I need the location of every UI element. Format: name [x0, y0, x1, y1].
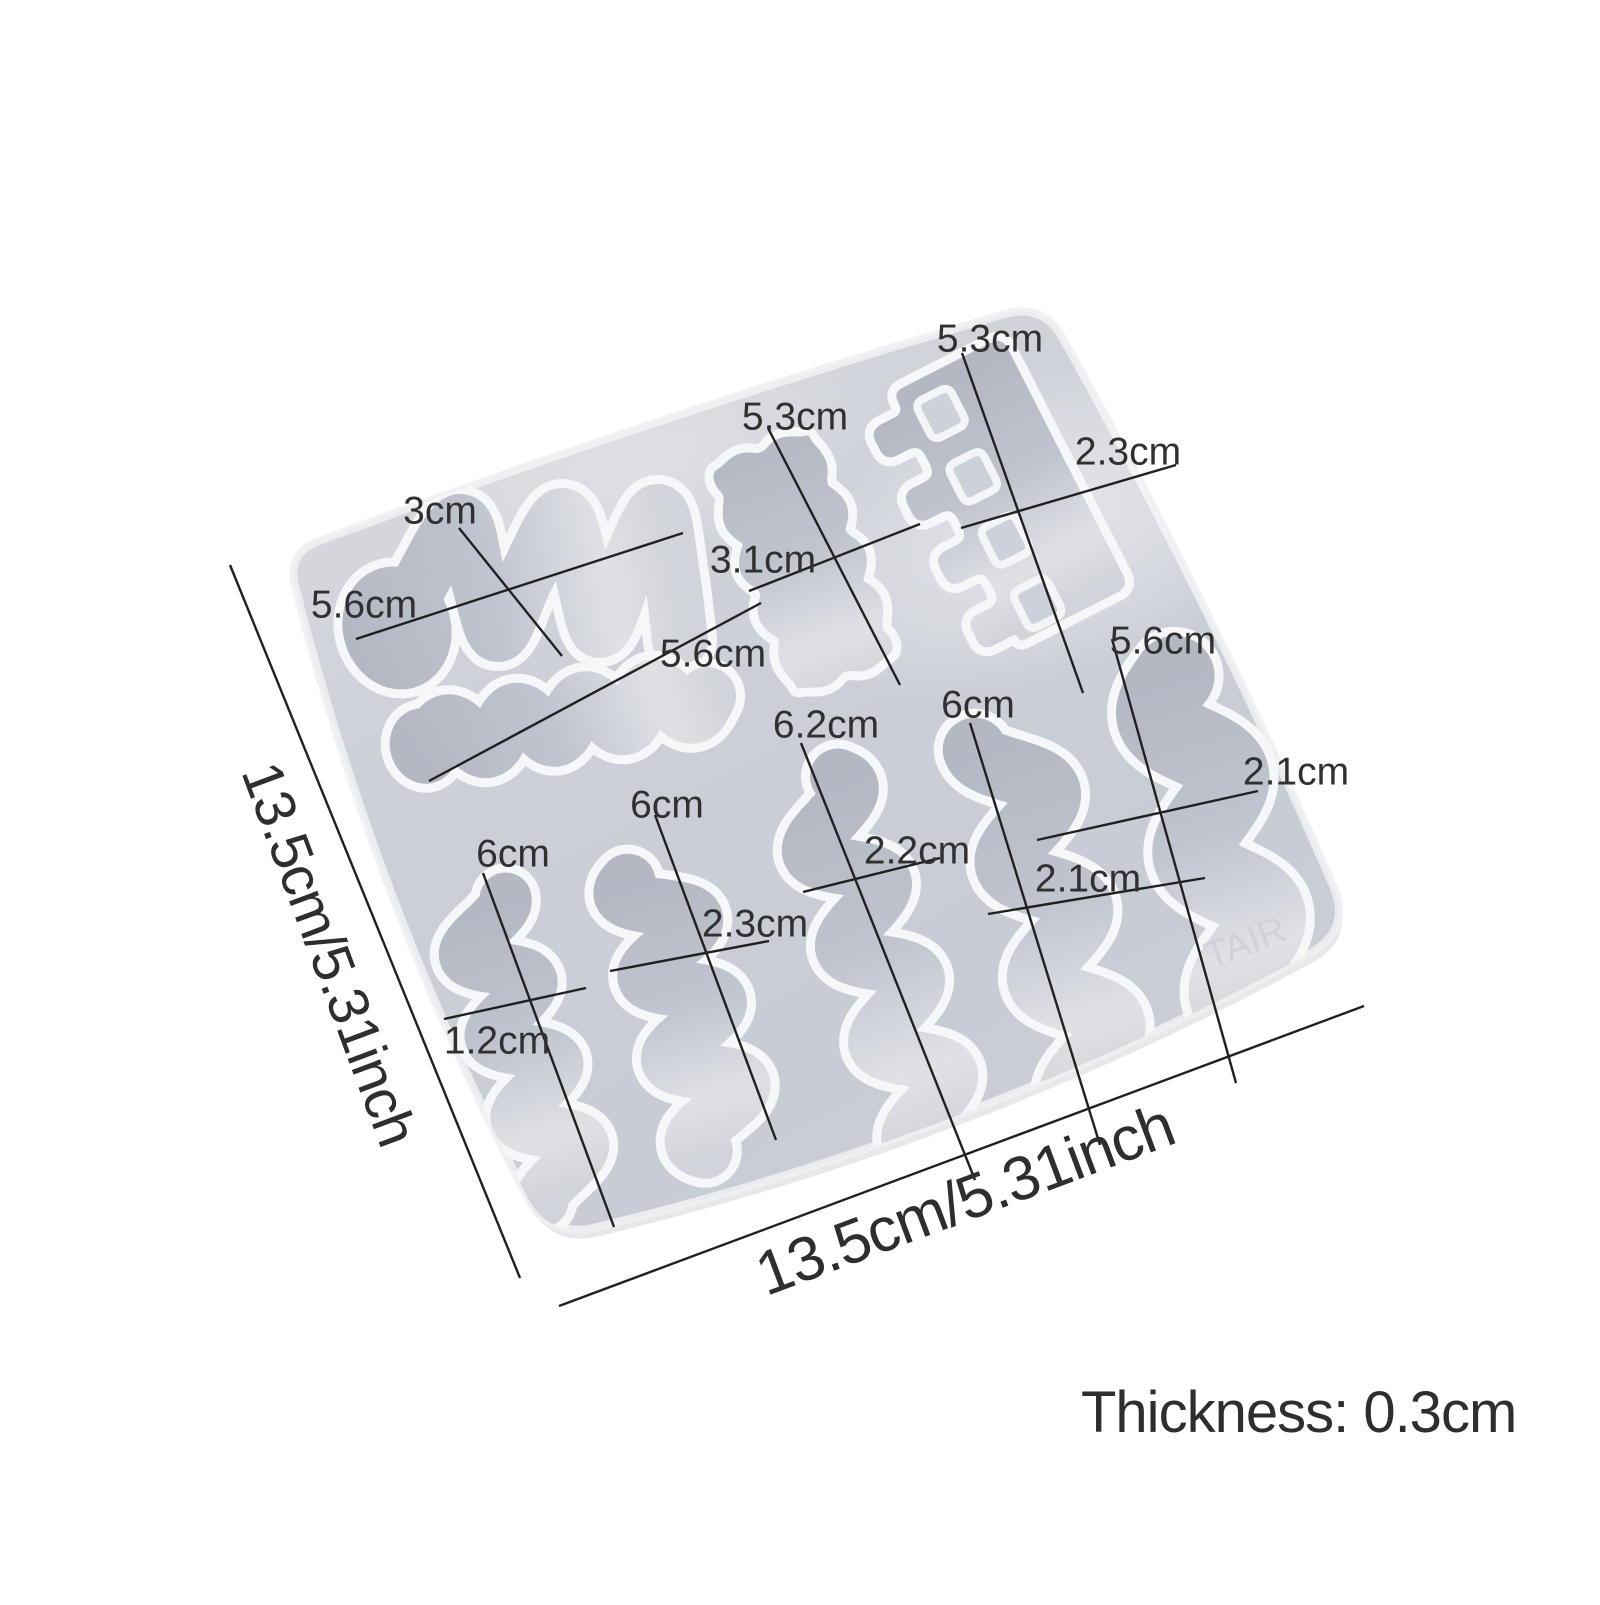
svg-text:Thickness: 0.3cm: Thickness: 0.3cm	[1081, 1380, 1516, 1445]
svg-text:6.2cm: 6.2cm	[773, 704, 879, 747]
svg-text:5.3cm: 5.3cm	[937, 318, 1043, 361]
svg-text:5.3cm: 5.3cm	[742, 396, 848, 439]
svg-text:6cm: 6cm	[476, 833, 550, 876]
svg-text:2.3cm: 2.3cm	[1075, 431, 1181, 474]
svg-text:5.6cm: 5.6cm	[1110, 620, 1216, 663]
svg-text:2.3cm: 2.3cm	[702, 903, 808, 946]
svg-text:1.2cm: 1.2cm	[444, 1020, 550, 1063]
svg-text:6cm: 6cm	[941, 684, 1015, 727]
svg-text:5.6cm: 5.6cm	[660, 633, 766, 676]
svg-text:5.6cm: 5.6cm	[311, 584, 417, 627]
svg-text:6cm: 6cm	[630, 784, 704, 827]
svg-text:2.2cm: 2.2cm	[864, 830, 970, 873]
svg-text:2.1cm: 2.1cm	[1243, 751, 1349, 794]
svg-text:3.1cm: 3.1cm	[710, 539, 816, 582]
svg-text:2.1cm: 2.1cm	[1035, 858, 1141, 901]
svg-text:3cm: 3cm	[403, 490, 477, 533]
